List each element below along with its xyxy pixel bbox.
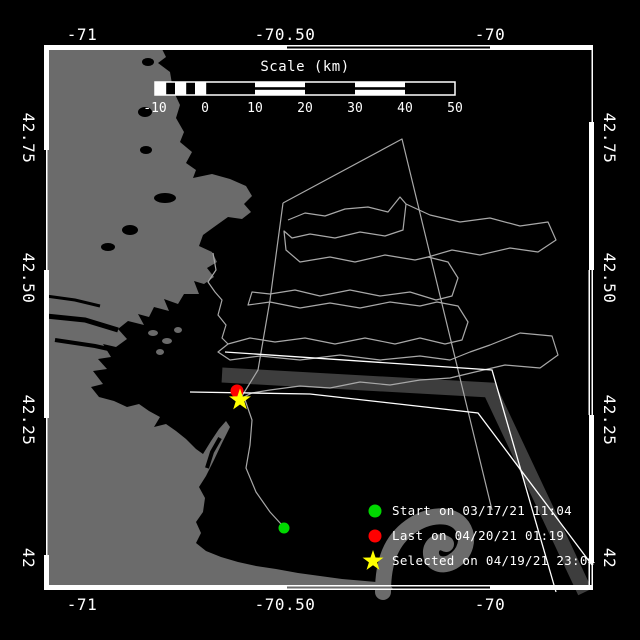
- island: [148, 330, 158, 336]
- axis-label-top-lon: -71: [67, 27, 97, 43]
- axis-label-top-lon: -70: [475, 27, 505, 43]
- start-position-marker[interactable]: [279, 523, 290, 534]
- legend-selected-label: Selected on 04/19/21 23:04: [392, 555, 595, 568]
- scale-tick-label: 40: [397, 102, 413, 115]
- scale-tick-label: 20: [297, 102, 313, 115]
- island: [174, 327, 182, 333]
- legend-start-label: Start on 03/17/21 11:04: [392, 505, 572, 518]
- scale-bar: [155, 82, 455, 95]
- scale-tick-label: 30: [347, 102, 363, 115]
- axis-label-right-lat: 42.50: [601, 253, 617, 304]
- axis-label-bottom-lon: -71: [67, 597, 97, 613]
- axis-label-left-lat: 42.50: [20, 253, 36, 304]
- map-canvas[interactable]: [0, 0, 640, 640]
- scale-tick-label: 10: [247, 102, 263, 115]
- axis-label-right-lat: 42: [601, 548, 617, 568]
- legend-last-dot-icon: [369, 530, 382, 543]
- axis-label-right-lat: 42.75: [601, 113, 617, 164]
- map-window: -71 -70.50 -70 -71 -70.50 -70 42.75 42.5…: [0, 0, 640, 640]
- scale-tick-label: 0: [201, 102, 209, 115]
- axis-label-left-lat: 42.25: [20, 395, 36, 446]
- scale-bar-title: Scale (km): [260, 60, 349, 74]
- legend-start-dot-icon: [369, 505, 382, 518]
- island: [156, 349, 164, 355]
- axis-label-left-lat: 42.75: [20, 113, 36, 164]
- axis-label-top-lon: -70.50: [255, 27, 316, 43]
- legend-last-label: Last on 04/20/21 01:19: [392, 530, 564, 543]
- scale-tick-label: 50: [447, 102, 463, 115]
- scale-tick-label: -10: [143, 102, 166, 115]
- axis-label-left-lat: 42: [20, 548, 36, 568]
- axis-label-right-lat: 42.25: [601, 395, 617, 446]
- axis-label-bottom-lon: -70: [475, 597, 505, 613]
- island: [162, 338, 172, 344]
- axis-label-bottom-lon: -70.50: [255, 597, 316, 613]
